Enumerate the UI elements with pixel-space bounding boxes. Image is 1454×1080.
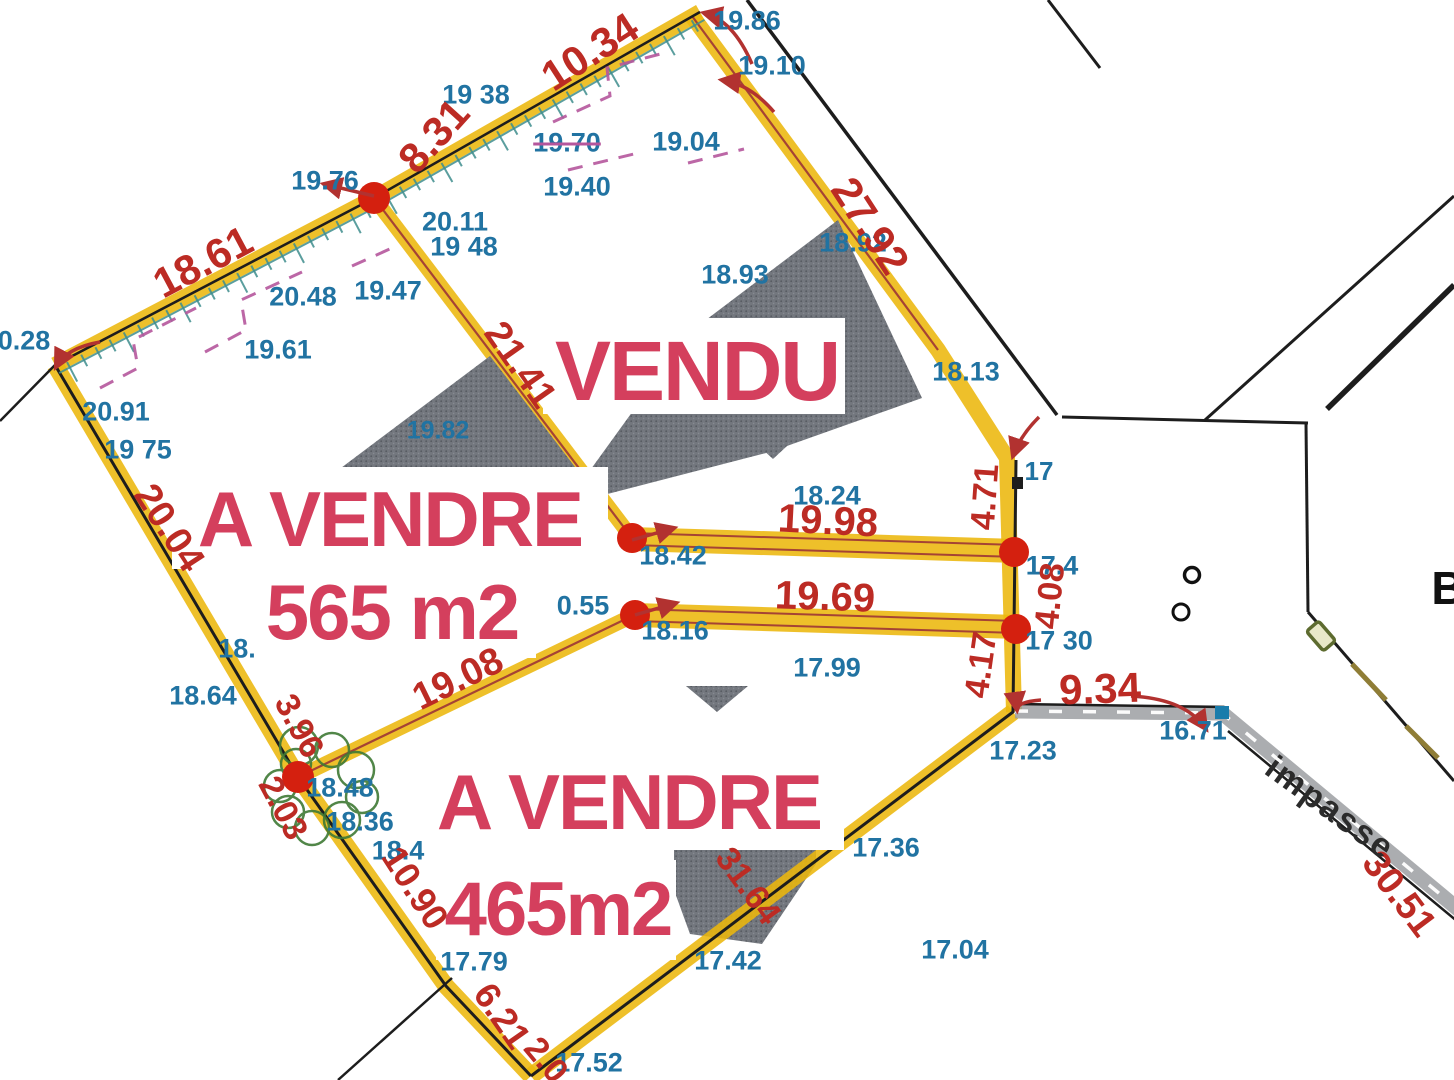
elevation-label: 18.13	[932, 359, 1000, 386]
measurement-label: 9.34	[1058, 667, 1141, 712]
elevation-label: 0.28	[0, 328, 50, 355]
cadastral-site-plan: 19.8619.1019 3819.7019.0419.4019.7620.11…	[0, 0, 1454, 1080]
elevation-label: 17.04	[921, 937, 989, 964]
elevation-label: 16.71	[1159, 718, 1227, 745]
elevation-label: 19.82	[407, 419, 470, 444]
plan-labels: 19.8619.1019 3819.7019.0419.4019.7620.11…	[0, 0, 1454, 1080]
elevation-label: 19.76	[291, 168, 359, 195]
measurement-label: 10.90	[375, 840, 454, 935]
elevation-label: 19.61	[244, 337, 312, 364]
parcel-565-status: A VENDRE	[198, 480, 582, 558]
elevation-label: 19 75	[104, 437, 172, 464]
parcel-465-status: A VENDRE	[437, 763, 821, 841]
elevation-label: 20.91	[82, 399, 150, 426]
measurement-label: 4.71	[966, 463, 1005, 531]
elevation-label: 18.	[218, 636, 256, 663]
measurement-label: 27.92	[824, 170, 916, 281]
elevation-label: 17.36	[852, 835, 920, 862]
measurement-label: 18.61	[147, 219, 260, 305]
elevation-label: 17	[1025, 458, 1054, 484]
street-label-edge-letter: B	[1431, 565, 1454, 611]
elevation-label: 17.42	[694, 948, 762, 975]
parcel-465-area: 465m2	[445, 872, 672, 948]
elevation-label: 18.16	[641, 618, 709, 645]
elevation-label: 19.47	[354, 278, 422, 305]
elevation-label: 17 30	[1025, 628, 1093, 655]
measurement-label: 6.21	[467, 977, 537, 1055]
measurement-label: 2.03	[252, 771, 313, 845]
measurement-label: 21.41	[477, 315, 563, 415]
elevation-label: 19.70	[533, 130, 601, 157]
elevation-label: 17.79	[440, 949, 508, 976]
elevation-label: 18.42	[639, 543, 707, 570]
elevation-label: 19 48	[430, 234, 498, 261]
elevation-label: 18.36	[326, 809, 394, 836]
measurement-label: 10.34	[534, 6, 645, 98]
measurement-label: 19.98	[777, 498, 879, 543]
measurement-label: 19.69	[774, 575, 875, 618]
elevation-label: 19.04	[652, 129, 720, 156]
elevation-label: 19.86	[713, 8, 781, 35]
parcel-565-area: 565 m2	[266, 573, 519, 651]
elevation-label: 19.10	[738, 53, 806, 80]
elevation-label: 20.48	[269, 284, 337, 311]
elevation-label: 17.23	[989, 738, 1057, 765]
elevation-label: 18.48	[306, 775, 374, 802]
elevation-label: 18.93	[701, 262, 769, 289]
measurement-label: 4.08	[1030, 561, 1071, 630]
measurement-label: 31.64	[709, 842, 787, 931]
vendu-overlay: VENDU	[555, 329, 839, 413]
elevation-label: 19.40	[543, 174, 611, 201]
elevation-label: 0.55	[557, 593, 610, 620]
elevation-label: 17.99	[793, 655, 861, 682]
elevation-label: 18.64	[169, 683, 237, 710]
measurement-label: 3.96	[268, 689, 329, 763]
street-label-impasse: impasse	[1259, 750, 1400, 866]
measurement-label: 4.17	[960, 630, 1003, 700]
